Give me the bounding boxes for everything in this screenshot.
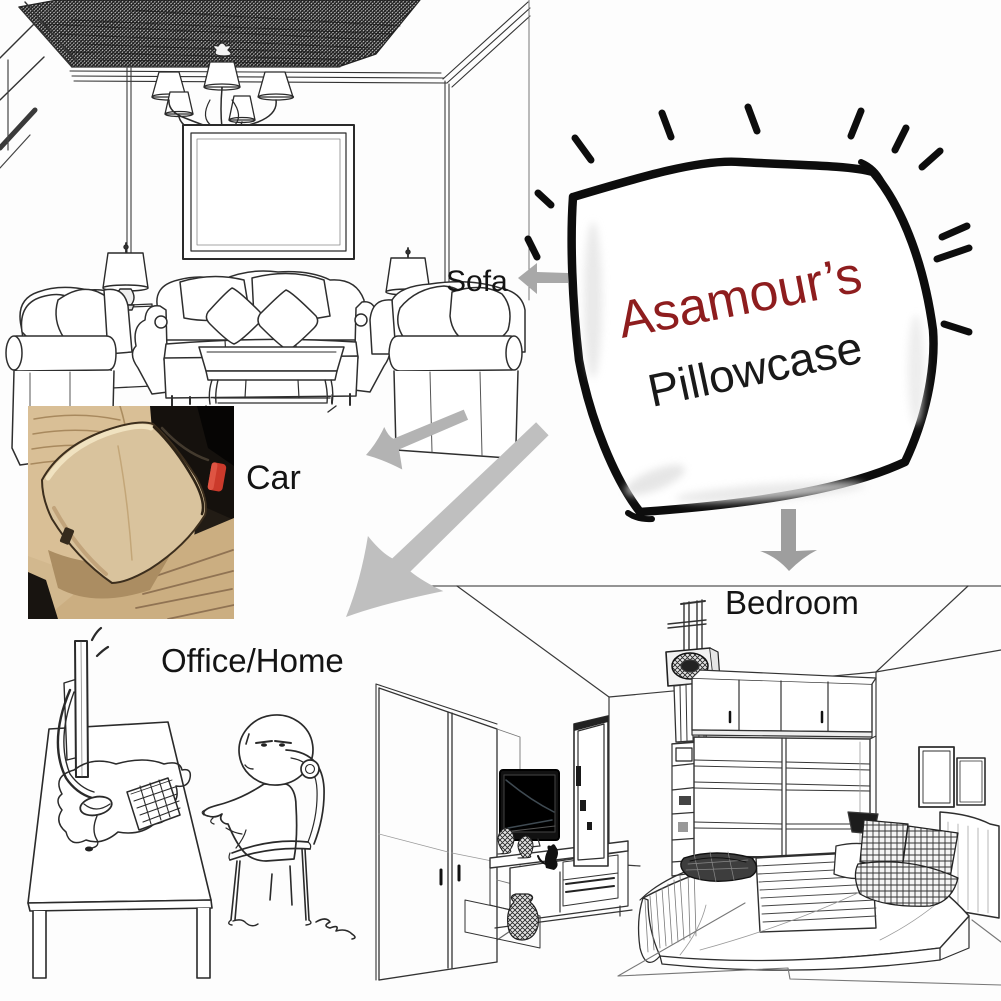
svg-text:Office/Home: Office/Home — [161, 642, 344, 679]
svg-text:Sofa: Sofa — [446, 265, 508, 298]
svg-text:Car: Car — [246, 459, 301, 497]
svg-text:Bedroom: Bedroom — [725, 584, 859, 621]
